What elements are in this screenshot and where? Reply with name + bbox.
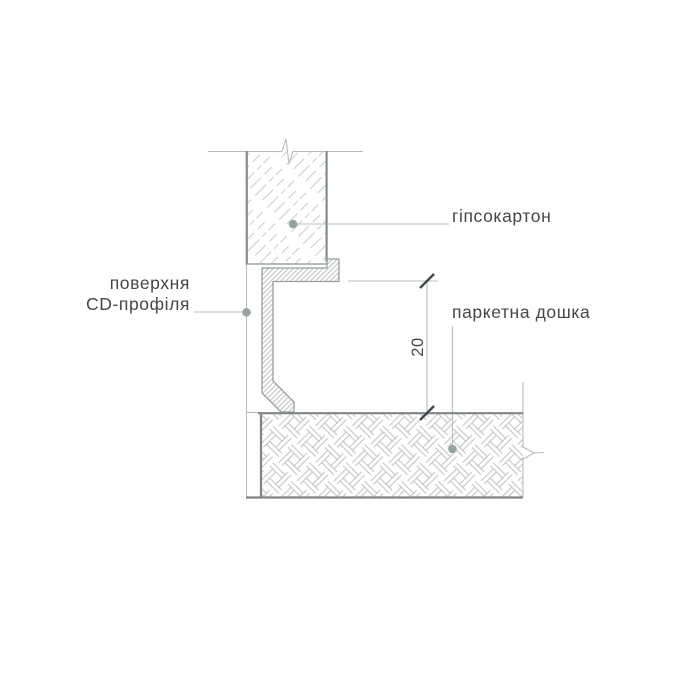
parquet-board (246, 413, 523, 498)
leader-dot-profile (242, 308, 251, 317)
gypsum-board (246, 151, 328, 264)
parquet-board-hatch (260, 413, 523, 498)
cd-profile-section (262, 259, 339, 412)
label-parquet: паркетна дошка (452, 302, 590, 322)
dimension-value-20: 20 (409, 337, 427, 356)
leader-dot-gypsum (289, 220, 298, 229)
label-profile-surface-line1: поверхня (110, 273, 190, 293)
construction-detail-page: гіпсокартон поверхня CD-профіля паркетна… (0, 0, 700, 700)
break-line-right-tick (534, 453, 544, 454)
construction-detail-drawing: гіпсокартон поверхня CD-профіля паркетна… (0, 0, 700, 700)
leader-dot-parquet (448, 445, 457, 454)
gypsum-board-hatch (246, 152, 328, 265)
label-gypsum: гіпсокартон (452, 206, 551, 226)
break-line-right (523, 382, 534, 498)
label-profile-surface-line2: CD-профіля (86, 294, 190, 314)
